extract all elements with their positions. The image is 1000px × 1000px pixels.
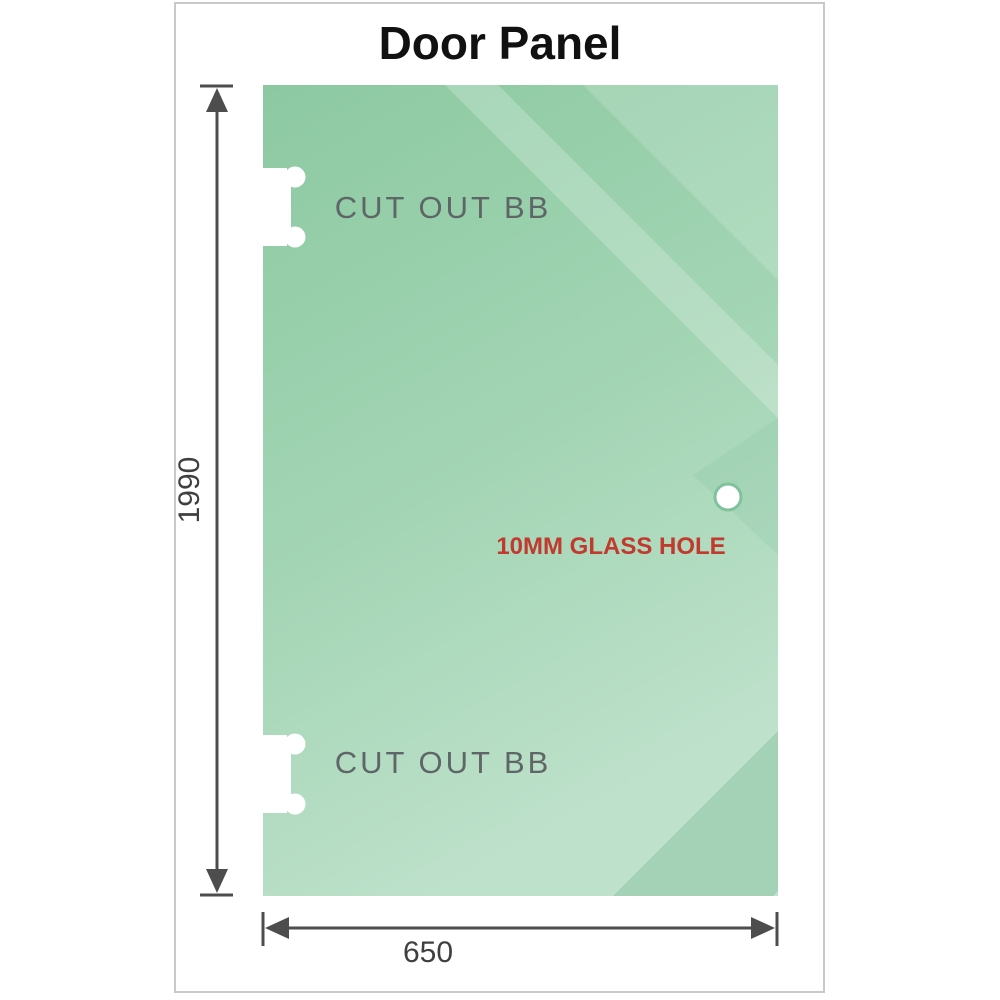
cutout-bottom-label: CUT OUT BB [335, 745, 552, 781]
height-dimension-label: 1990 [173, 457, 207, 524]
cutout-top-label: CUT OUT BB [335, 190, 552, 226]
glass-hole-label: 10MM GLASS HOLE [496, 533, 725, 561]
width-dimension-arrow [263, 912, 777, 946]
dimension-lines [0, 0, 1000, 1000]
width-dimension-label: 650 [403, 936, 453, 970]
